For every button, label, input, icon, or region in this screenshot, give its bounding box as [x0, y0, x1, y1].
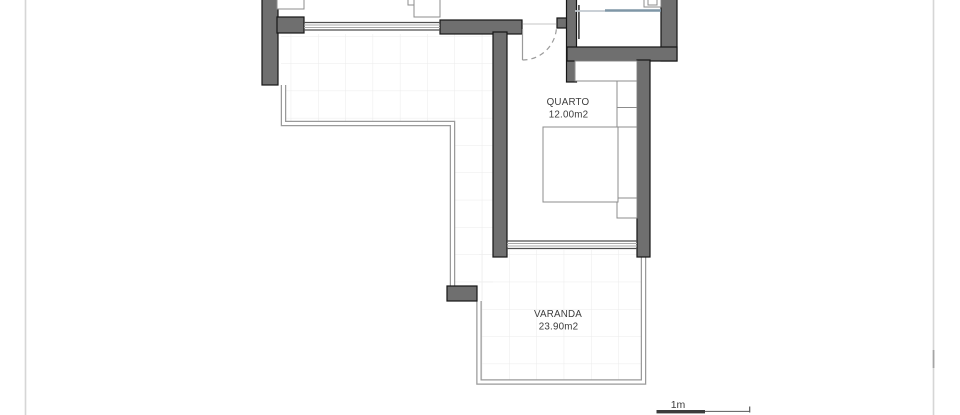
scale-bar: 1m — [657, 399, 751, 413]
room-name: QUARTO — [547, 97, 590, 108]
window-top-outer-lines — [304, 23, 440, 31]
floor-plan-page: QUARTO 12.00m2 VARANDA 23.90m2 1m — [0, 0, 960, 415]
room-label-varanda: VARANDA 23.90m2 — [534, 309, 582, 333]
varanda-tiled-floor — [281, 34, 644, 382]
wall-bedroom-right — [637, 60, 650, 257]
wardrobe-top — [575, 61, 637, 81]
wall-balcony-pillar — [447, 286, 477, 301]
bathroom-fixture-inner — [648, 0, 657, 5]
room-name: VARANDA — [534, 309, 582, 320]
wall-bedroom-left — [493, 32, 507, 257]
room-area: 12.00m2 — [549, 110, 589, 121]
scale-label: 1m — [671, 399, 686, 411]
room-label-quarto: QUARTO 12.00m2 — [547, 97, 590, 121]
wall-left-vertical — [262, 0, 278, 85]
bedroom-door — [523, 24, 557, 60]
glass-partition — [575, 11, 661, 12]
tile-region-upper — [281, 34, 493, 123]
scale-bar-solid-segment — [657, 410, 706, 413]
window-bedroom-inner-lines — [507, 244, 637, 247]
wall-top-horizontal — [440, 20, 522, 34]
floor-plan-canvas: QUARTO 12.00m2 VARANDA 23.90m2 1m — [0, 0, 960, 415]
window-top-inner-lines — [304, 25, 440, 28]
door-swing-arc — [523, 26, 557, 60]
wall-topright-horizontal — [567, 47, 677, 61]
bed — [543, 127, 618, 202]
page-edge-right-mark — [933, 350, 935, 368]
kitchen-cabinet-left — [277, 0, 304, 9]
wall-window-stub-left — [277, 17, 304, 33]
window-top — [304, 23, 440, 31]
room-area: 23.90m2 — [539, 322, 579, 333]
window-bedroom-balcony — [507, 241, 637, 249]
wardrobe-tall-cabinet — [617, 81, 637, 218]
window-bedroom-outer-lines — [507, 241, 637, 249]
kitchen-cabinet-right-inner — [414, 0, 440, 17]
